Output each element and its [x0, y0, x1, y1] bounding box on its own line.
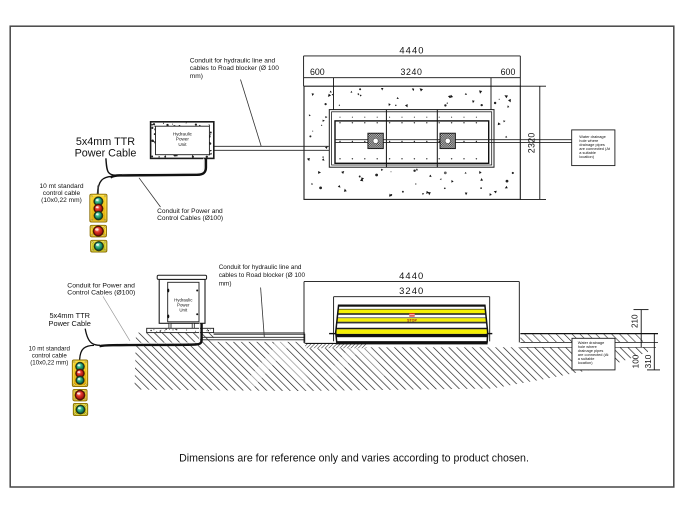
svg-text:(10x0,22 mm): (10x0,22 mm): [30, 359, 68, 366]
svg-text:cables to Road blocker (Ø 100: cables to Road blocker (Ø 100: [219, 272, 306, 279]
svg-text:STOP: STOP: [407, 318, 417, 322]
svg-text:3240: 3240: [399, 285, 424, 296]
svg-text:4440: 4440: [399, 270, 424, 281]
svg-text:310: 310: [644, 354, 653, 368]
svg-text:5x4mm TTR: 5x4mm TTR: [76, 136, 135, 148]
svg-text:600: 600: [501, 67, 516, 77]
svg-text:location): location): [578, 360, 593, 365]
svg-text:100: 100: [632, 354, 641, 368]
svg-text:Conduit for hydraulic line and: Conduit for hydraulic line and: [219, 264, 302, 271]
svg-text:control cable: control cable: [32, 352, 68, 359]
svg-text:cables to Road blocker (Ø 100: cables to Road blocker (Ø 100: [190, 65, 279, 72]
svg-text:(10x0,22 mm): (10x0,22 mm): [41, 197, 82, 204]
svg-text:Unit: Unit: [179, 308, 188, 313]
svg-text:Power Cable: Power Cable: [75, 148, 137, 160]
svg-text:Control Cables (Ø100): Control Cables (Ø100): [67, 290, 135, 297]
svg-text:3240: 3240: [401, 67, 423, 77]
svg-text:mm): mm): [190, 73, 203, 80]
svg-text:Conduit for hydraulic line and: Conduit for hydraulic line and: [190, 57, 276, 64]
svg-text:Dimensions are for reference o: Dimensions are for reference only and va…: [179, 453, 529, 465]
svg-text:210: 210: [631, 314, 640, 328]
svg-text:mm): mm): [219, 280, 232, 287]
svg-text:Unit: Unit: [178, 142, 187, 147]
svg-text:location): location): [579, 154, 594, 159]
svg-text:control cable: control cable: [43, 190, 81, 197]
svg-text:4440: 4440: [399, 45, 424, 56]
svg-text:600: 600: [310, 67, 325, 77]
svg-text:Conduit for Power and: Conduit for Power and: [157, 208, 223, 215]
svg-text:Conduit for Power and: Conduit for Power and: [67, 283, 135, 290]
svg-text:10 mt standard: 10 mt standard: [40, 183, 84, 190]
svg-text:Control Cables (Ø100): Control Cables (Ø100): [157, 215, 223, 222]
svg-text:10 mt standard: 10 mt standard: [29, 345, 71, 352]
svg-text:Power Cable: Power Cable: [49, 319, 91, 328]
svg-text:2320: 2320: [527, 132, 537, 153]
